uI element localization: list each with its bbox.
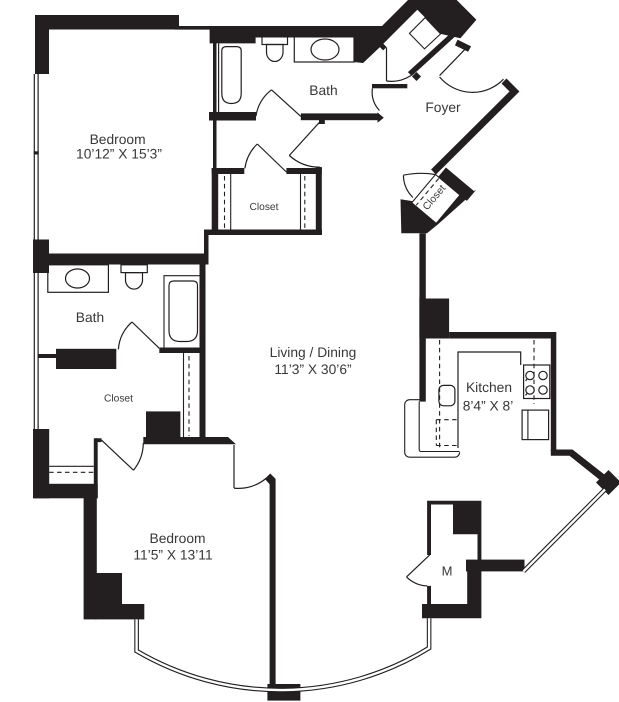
svg-text:Closet: Closet [104,394,133,405]
svg-text:M: M [442,564,453,579]
svg-text:8’4” X 8’: 8’4” X 8’ [463,399,514,414]
svg-text:Living / Dining: Living / Dining [270,345,357,360]
svg-text:Kitchen: Kitchen [466,380,512,395]
svg-text:Bath: Bath [76,310,104,325]
svg-text:11’5” X 13’11: 11’5” X 13’11 [133,548,212,563]
svg-text:Bedroom: Bedroom [90,132,146,147]
svg-text:Closet: Closet [250,202,279,213]
svg-text:Bedroom: Bedroom [150,531,206,546]
svg-text:Foyer: Foyer [425,100,461,115]
svg-text:11’3” X 30’6”: 11’3” X 30’6” [274,362,352,377]
svg-text:Bath: Bath [309,83,337,98]
svg-text:10’12” X 15’3”: 10’12” X 15’3” [76,147,162,162]
